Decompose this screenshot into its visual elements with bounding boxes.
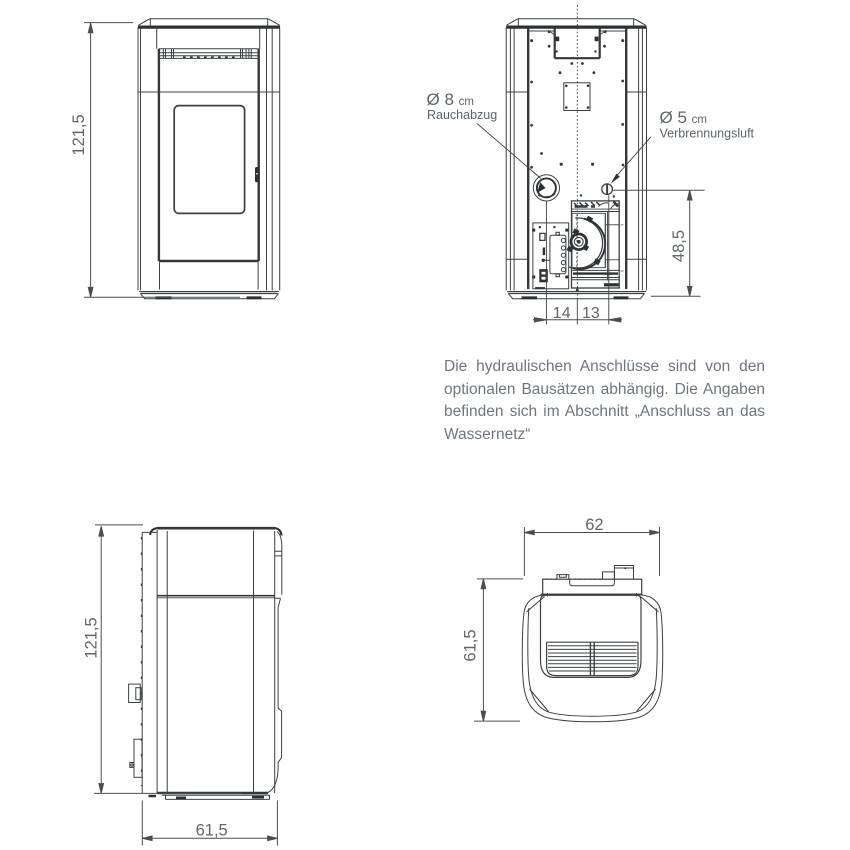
svg-text:62: 62 <box>585 516 603 534</box>
svg-text:Rauchabzug: Rauchabzug <box>427 108 497 122</box>
svg-text:48,5: 48,5 <box>670 230 688 262</box>
svg-text:61,5: 61,5 <box>196 822 228 840</box>
svg-text:14: 14 <box>553 305 571 322</box>
svg-text:Ø 5 cm: Ø 5 cm <box>660 108 707 127</box>
svg-text:121,5: 121,5 <box>82 617 100 658</box>
svg-text:61,5: 61,5 <box>461 629 479 661</box>
svg-text:13: 13 <box>582 305 600 322</box>
svg-text:121,5: 121,5 <box>70 114 88 155</box>
svg-text:Verbrennungsluft: Verbrennungsluft <box>660 127 755 141</box>
svg-text:Ø 8 cm: Ø 8 cm <box>427 90 474 109</box>
